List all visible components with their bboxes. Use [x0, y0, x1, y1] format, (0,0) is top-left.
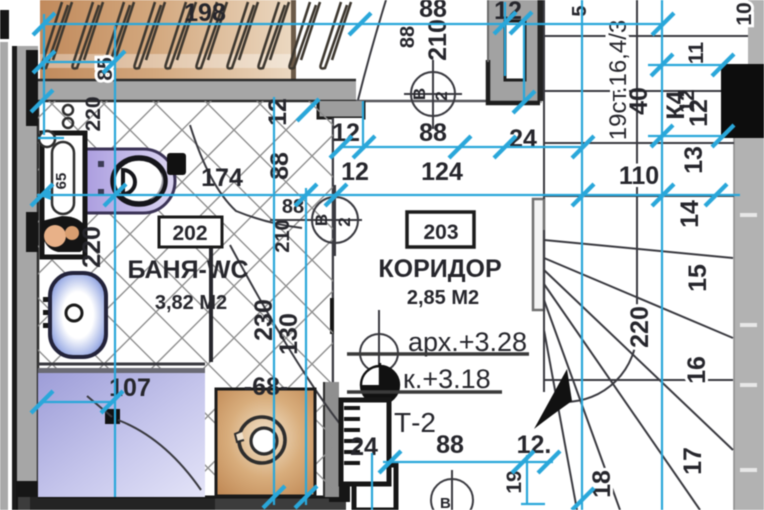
svg-text:88: 88 — [397, 26, 419, 48]
svg-text:65: 65 — [53, 173, 70, 190]
svg-text:15: 15 — [684, 264, 712, 292]
svg-text:203: 203 — [423, 221, 458, 244]
svg-text:БАНЯ-WC: БАНЯ-WC — [127, 256, 248, 284]
svg-text:11: 11 — [685, 42, 708, 65]
svg-text:12: 12 — [685, 99, 713, 127]
svg-text:24: 24 — [350, 433, 378, 461]
svg-text:88: 88 — [419, 119, 447, 147]
svg-text:3,82 М2: 3,82 М2 — [155, 292, 227, 314]
svg-text:12: 12 — [341, 158, 369, 186]
svg-text:110: 110 — [619, 162, 659, 190]
svg-text:В: В — [440, 495, 451, 510]
svg-text:18: 18 — [588, 470, 616, 498]
svg-text:2,85 М2: 2,85 М2 — [407, 287, 479, 309]
svg-text:2: 2 — [432, 91, 451, 100]
svg-text:220: 220 — [626, 306, 654, 348]
svg-text:-68-: -68- — [244, 373, 288, 401]
svg-text:130: 130 — [275, 313, 303, 355]
svg-text:88: 88 — [436, 431, 464, 459]
svg-text:202: 202 — [172, 222, 207, 245]
svg-text:17: 17 — [679, 447, 707, 475]
svg-text:12: 12 — [264, 98, 292, 126]
svg-text:220: 220 — [82, 96, 105, 131]
svg-text:13: 13 — [680, 146, 708, 174]
svg-text:174: 174 — [201, 164, 243, 192]
svg-text:88: 88 — [266, 152, 294, 180]
svg-text:В: В — [410, 88, 429, 100]
svg-text:10: 10 — [733, 2, 756, 25]
svg-text:к.+3.18: к.+3.18 — [403, 364, 491, 394]
svg-text:2: 2 — [335, 217, 354, 226]
svg-text:124: 124 — [421, 158, 463, 186]
svg-text:В: В — [312, 214, 331, 226]
svg-text:210: 210 — [272, 219, 294, 252]
svg-text:210: 210 — [424, 19, 452, 61]
svg-text:19: 19 — [503, 470, 526, 493]
svg-text:220: 220 — [78, 226, 106, 268]
svg-text:19ст.16,4/3: 19ст.16,4/3 — [605, 20, 632, 140]
svg-text:16: 16 — [683, 356, 711, 384]
svg-text:40: 40 — [625, 87, 653, 115]
svg-text:14: 14 — [676, 200, 704, 228]
svg-text:КОРИДОР: КОРИДОР — [378, 255, 501, 283]
svg-text:5: 5 — [569, 5, 591, 16]
svg-text:12.: 12. — [517, 431, 552, 459]
svg-text:Т-2: Т-2 — [394, 407, 436, 438]
